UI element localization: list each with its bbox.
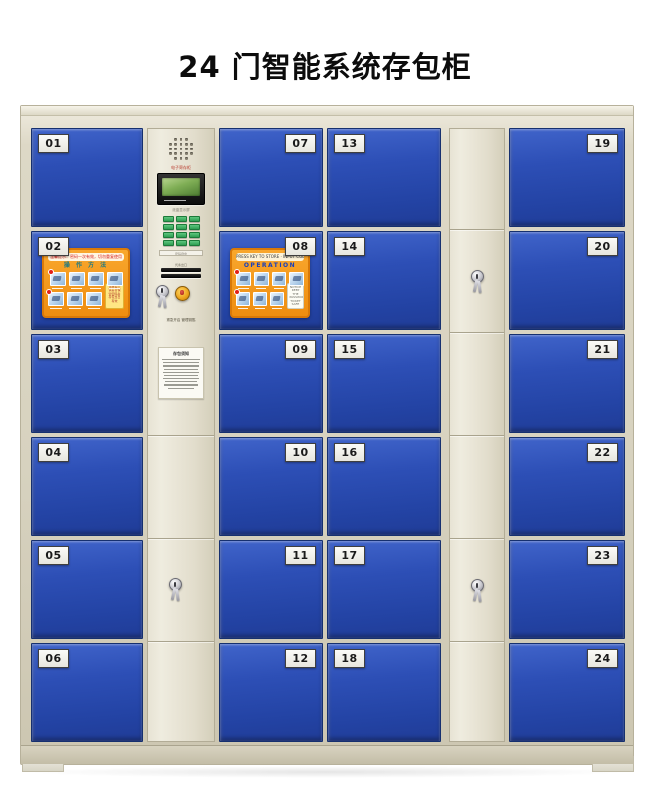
ticket-slot: [161, 268, 201, 272]
locker-grid: 0102温馨提示：密码一次有效，切勿重复使用操 作 方 法温馨提示 请妥善保管密…: [21, 106, 633, 764]
speaker-dot: [190, 148, 193, 151]
keypad-key: [176, 216, 187, 222]
notice-card: 存包须知: [158, 347, 204, 399]
notice-text-line: [163, 378, 199, 379]
sticker-title-text: OPERATION: [236, 261, 304, 270]
sticker-step-row: [236, 272, 304, 286]
speaker-row: [169, 143, 193, 146]
lock-and-button-row: [148, 285, 214, 317]
door-number-plate: 22: [587, 443, 618, 462]
step-photo: [67, 292, 83, 306]
step-badge-icon: [46, 289, 52, 295]
speaker-row: [169, 148, 193, 151]
speaker-dot: [185, 148, 188, 151]
cabinet-base: [21, 745, 633, 764]
hanging-key-icon: [477, 281, 481, 293]
step-photo: [253, 292, 267, 306]
speaker-row: [174, 157, 187, 160]
hanging-key-icon: [162, 296, 166, 308]
door-number-plate: 15: [334, 340, 365, 359]
notice-text-line: [163, 365, 200, 366]
panel-seam: [450, 538, 504, 539]
speaker-dot: [174, 138, 177, 141]
locker-door-04: 04: [31, 437, 143, 536]
speaker-dot: [180, 148, 183, 151]
speaker-dot: [174, 157, 177, 160]
door-number-plate: 13: [334, 134, 365, 153]
panel-seam: [148, 435, 214, 436]
door-number-plate: 01: [38, 134, 69, 153]
emergency-button-icon: [175, 286, 190, 301]
speaker-dot: [180, 138, 183, 141]
panel-seam: [148, 538, 214, 539]
step-badge-icon: [234, 269, 240, 275]
notice-text-line: [168, 388, 195, 389]
speaker-dot: [174, 152, 177, 155]
door-number-plate: 19: [587, 134, 618, 153]
key-lock-icon: [471, 270, 484, 298]
door-number-plate: 21: [587, 340, 618, 359]
locker-door-14: 14: [327, 231, 441, 330]
locker-cabinet: 0102温馨提示：密码一次有效，切勿重复使用操 作 方 法温馨提示 请妥善保管密…: [20, 105, 634, 765]
display-screen: [157, 173, 205, 205]
speaker-dot: [174, 148, 177, 151]
speaker-row: [169, 152, 193, 155]
notice-text-line: [164, 375, 197, 376]
door-number-plate: 12: [285, 649, 316, 668]
locker-door-03: 03: [31, 334, 143, 433]
control-panel: 电子寄存柜液晶显示屏密码键盘凭条出口紧急开启 管理钥匙存包须知: [148, 129, 214, 399]
speaker-dot: [185, 138, 188, 141]
floor-shadow: [24, 766, 628, 778]
speaker-dot: [180, 157, 183, 160]
sticker-title-text: 操 作 方 法: [48, 261, 124, 270]
instruction-sticker: PRESS KEY TO STORE · INPUT CODE TO OPENO…: [230, 248, 310, 318]
speaker-dot: [174, 143, 177, 146]
keypad-key: [189, 224, 200, 230]
password-keypad: [161, 216, 202, 246]
screen-note-label: 液晶显示屏: [148, 208, 214, 212]
locker-door-01: 01: [31, 128, 143, 227]
locker-door-02: 02温馨提示：密码一次有效，切勿重复使用操 作 方 法温馨提示 请妥善保管密码条…: [31, 231, 143, 330]
locker-door-16: 16: [327, 437, 441, 536]
locker-door-13: 13: [327, 128, 441, 227]
step-photo: [272, 272, 287, 286]
door-number-plate: 03: [38, 340, 69, 359]
door-number-plate: 09: [285, 340, 316, 359]
key-lock-icon: [471, 579, 484, 607]
door-number-plate: 14: [334, 237, 365, 256]
step-photo: [270, 292, 284, 306]
speaker-dot: [169, 152, 172, 155]
speaker-dot: [190, 143, 193, 146]
step-photo: [289, 272, 304, 286]
step-photo: [48, 292, 64, 306]
keypad-label-strip: 密码键盘: [159, 250, 203, 256]
panel-seam: [148, 641, 214, 642]
keypad-key: [189, 232, 200, 238]
panel-column-side: [449, 128, 505, 742]
speaker-dot: [180, 152, 183, 155]
notice-text-line: [164, 384, 199, 385]
locker-door-19: 19: [509, 128, 625, 227]
step-photo: [236, 292, 250, 306]
step-badge-icon: [48, 269, 54, 275]
locker-door-08: 08PRESS KEY TO STORE · INPUT CODE TO OPE…: [219, 231, 323, 330]
step-photo: [50, 272, 66, 286]
door-number-plate: 07: [285, 134, 316, 153]
locker-door-23: 23: [509, 540, 625, 639]
door-number-plate: 10: [285, 443, 316, 462]
slot-caption-label: 凭条出口: [148, 263, 214, 267]
sticker-step-grid: NOTICE KEEP THE PASSWORD TICKET SAFE: [236, 272, 304, 312]
step-badge-icon: [234, 289, 240, 295]
locker-door-18: 18: [327, 643, 441, 742]
keypad-key: [189, 216, 200, 222]
step-photo: [254, 272, 269, 286]
locker-door-10: 10: [219, 437, 323, 536]
lcd-display: [162, 178, 200, 196]
panel-brand-label: 电子寄存柜: [148, 165, 214, 170]
keypad-key: [163, 232, 174, 238]
step-photo: [86, 292, 102, 306]
step-photo: [69, 272, 85, 286]
sticker-step-row: 温馨提示 请妥善保管密码条 存包当日有效: [48, 292, 124, 306]
sticker-step-row: [48, 272, 124, 286]
panel-seam: [450, 229, 504, 230]
keypad-key: [163, 240, 174, 246]
door-number-plate: 06: [38, 649, 69, 668]
keypad-key: [163, 224, 174, 230]
step-photo: [236, 272, 251, 286]
panel-seam: [450, 641, 504, 642]
door-number-plate: 23: [587, 546, 618, 565]
keypad-key: [189, 240, 200, 246]
ticket-slot-area: 凭条出口: [148, 263, 214, 278]
speaker-dot: [169, 148, 172, 151]
locker-door-05: 05: [31, 540, 143, 639]
step-photo: [88, 272, 104, 286]
speaker-dot: [190, 152, 193, 155]
locker-door-07: 07: [219, 128, 323, 227]
panel-note-label: 紧急开启 管理钥匙: [148, 318, 214, 327]
hanging-key-icon: [477, 590, 481, 602]
notice-text-line: [163, 362, 199, 363]
locker-door-20: 20: [509, 231, 625, 330]
locker-door-24: 24: [509, 643, 625, 742]
step-photo: [107, 272, 123, 286]
key-lock-icon: [169, 578, 182, 606]
door-number-plate: 08: [285, 237, 316, 256]
door-number-plate: 04: [38, 443, 69, 462]
notice-text-line: [165, 381, 197, 382]
panel-seam: [450, 332, 504, 333]
keypad-key: [163, 216, 174, 222]
speaker-dot: [185, 152, 188, 155]
speaker-dot: [180, 143, 183, 146]
door-number-plate: 18: [334, 649, 365, 668]
speaker-row: [174, 138, 187, 141]
locker-door-22: 22: [509, 437, 625, 536]
keypad-key: [176, 240, 187, 246]
door-number-plate: 20: [587, 237, 618, 256]
door-number-plate: 16: [334, 443, 365, 462]
speaker-grille-icon: [148, 129, 214, 160]
door-number-plate: 17: [334, 546, 365, 565]
keypad-key: [176, 224, 187, 230]
speaker-dot: [185, 143, 188, 146]
locker-door-06: 06: [31, 643, 143, 742]
keypad-key: [176, 232, 187, 238]
panel-seam: [450, 435, 504, 436]
locker-door-11: 11: [219, 540, 323, 639]
door-number-plate: 02: [38, 237, 69, 256]
locker-door-09: 09: [219, 334, 323, 433]
sticker-step-grid: 温馨提示 请妥善保管密码条 存包当日有效: [48, 272, 124, 312]
locker-door-17: 17: [327, 540, 441, 639]
hanging-key-icon: [175, 589, 179, 601]
page-title: 24 门智能系统存包柜: [0, 44, 650, 86]
ticket-slot: [161, 274, 201, 278]
door-number-plate: 24: [587, 649, 618, 668]
panel-column-control: 电子寄存柜液晶显示屏密码键盘凭条出口紧急开启 管理钥匙存包须知: [147, 128, 215, 742]
door-number-plate: 05: [38, 546, 69, 565]
notice-text-line: [162, 359, 200, 360]
page: 24 门智能系统存包柜 0102温馨提示：密码一次有效，切勿重复使用操 作 方 …: [0, 0, 650, 790]
sticker-step-row: NOTICE KEEP THE PASSWORD TICKET SAFE: [236, 292, 304, 306]
key-lock-icon: [156, 285, 169, 313]
screen-caption-line: [164, 200, 186, 202]
notice-text-line: [164, 369, 198, 370]
instruction-sticker: 温馨提示：密码一次有效，切勿重复使用操 作 方 法温馨提示 请妥善保管密码条 存…: [42, 248, 130, 318]
notice-title-text: 存包须知: [162, 351, 200, 357]
locker-door-15: 15: [327, 334, 441, 433]
notice-text-line: [163, 372, 199, 373]
speaker-dot: [185, 157, 188, 160]
door-number-plate: 11: [285, 546, 316, 565]
locker-door-21: 21: [509, 334, 625, 433]
speaker-dot: [169, 143, 172, 146]
locker-door-12: 12: [219, 643, 323, 742]
